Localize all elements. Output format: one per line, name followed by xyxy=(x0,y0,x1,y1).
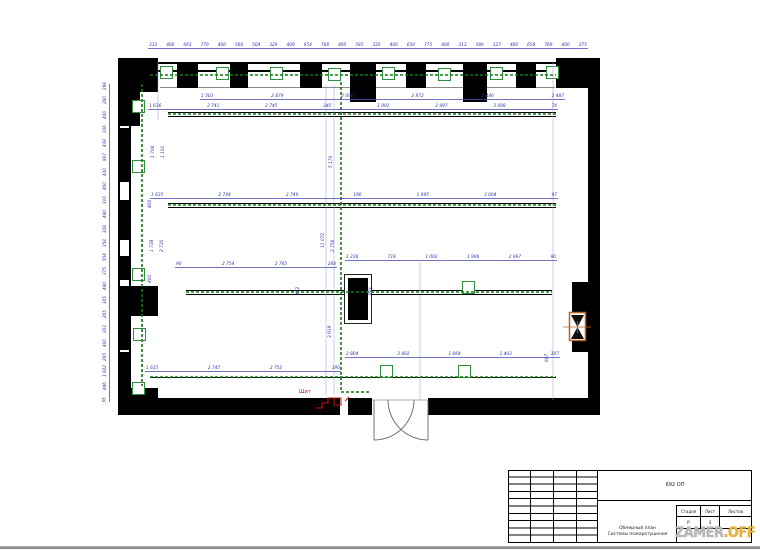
wall-pier xyxy=(118,128,131,182)
dimension-label: 438 xyxy=(102,139,106,147)
dimension-row-run3-left: 902 7542 765268 xyxy=(175,261,337,268)
dimension-label: 586 xyxy=(475,44,485,48)
dimension-label: 440 xyxy=(102,282,106,290)
dimension-label: 1 002 xyxy=(424,256,438,260)
dimension-label: 1 922 xyxy=(102,365,106,377)
dimension-label: 1 991 xyxy=(376,105,390,109)
dimension-label: 400 xyxy=(149,275,153,283)
wall-pier xyxy=(118,352,131,390)
drawing-title-line2: Системы пожаротушения xyxy=(608,532,668,539)
dimension-label: 650 xyxy=(406,44,416,48)
dimension-label: 2 879 xyxy=(270,95,284,99)
dimension-label: 1 403 xyxy=(499,353,513,357)
device-detector xyxy=(438,68,451,81)
dimension-label: 400 xyxy=(389,44,399,48)
dimension-row-top-3: 1 6362 7412 7452451 9912 9973 00874 xyxy=(148,103,558,110)
device-detector xyxy=(462,281,475,294)
dimension-label: 74 xyxy=(550,105,557,109)
dimension-label: 430 xyxy=(102,168,106,176)
dimension-label: 400 xyxy=(440,44,450,48)
dimension-label: 400 xyxy=(337,44,347,48)
dimension-label: 305 xyxy=(102,296,106,304)
dimension-column-left: 2982804001064389074304003104403283585543… xyxy=(100,84,110,402)
wall-pier xyxy=(177,62,198,88)
watermark: ZAMER.OFF xyxy=(681,524,749,542)
dimension-row-run3-right: 1 2367181 0021 9962 99790 xyxy=(345,254,557,261)
dimension-label: 298 xyxy=(102,82,106,90)
wall-right-pilaster xyxy=(572,282,588,352)
wall-bottom-right-segment xyxy=(428,398,600,415)
dimension-label: 190 xyxy=(331,367,341,371)
dimension-label: 275 xyxy=(578,44,588,48)
dimension-label: 310 xyxy=(102,196,106,204)
device-detector xyxy=(133,328,146,341)
device-detector xyxy=(490,67,503,80)
dimension-label: 607 xyxy=(546,354,550,362)
dimension-label: 265 xyxy=(102,310,106,318)
dimension-label: 268 xyxy=(327,263,337,267)
dimension-label: 504 xyxy=(251,44,261,48)
dimension-label: 90 xyxy=(175,263,182,267)
dimension-label: 190 xyxy=(352,194,362,198)
dimension-label: 400 xyxy=(102,111,106,119)
dimension-row-run2: 1 6352 7442 7491901 9953 00497 xyxy=(150,192,558,199)
dimension-label: 400 xyxy=(149,200,153,208)
device-detector xyxy=(458,365,471,378)
dimension-label: 2 744 xyxy=(217,194,231,198)
dimension-label: 2 730 xyxy=(161,240,165,252)
dimension-label: 265 xyxy=(102,353,106,361)
drawing-title: Обмерный план Системы пожаротушения xyxy=(598,500,677,542)
dimension-label: 2 752 xyxy=(269,367,283,371)
wall-pier xyxy=(300,62,322,88)
dimension-label: 2 997 xyxy=(508,256,522,260)
stage-label: Стадия xyxy=(677,506,701,517)
cable-run-4 xyxy=(150,377,556,378)
dimension-row-run4-left: 1 6152 7472 752190 xyxy=(145,365,341,372)
dimension-label: 718 xyxy=(387,256,397,260)
dimension-label: 1 101 xyxy=(162,146,166,158)
dimension-label: 245 xyxy=(322,105,332,109)
dimension-label: 1 636 xyxy=(148,105,162,109)
plan-overlay xyxy=(0,0,760,550)
dimension-label: 1 615 xyxy=(145,367,159,371)
device-detector xyxy=(380,365,393,378)
device-detector xyxy=(132,382,145,395)
dimension-label: 107 xyxy=(550,353,560,357)
dimension-label: 2 741 xyxy=(206,105,220,109)
device-detector xyxy=(328,68,341,81)
dimension-label: 1 064 xyxy=(447,353,461,357)
dimension-label: 1 706 xyxy=(152,146,156,158)
device-detector xyxy=(546,66,559,79)
wall-pier xyxy=(516,62,536,88)
dimension-label: 329 xyxy=(268,44,278,48)
dimension-label: 1 446 xyxy=(481,95,495,99)
wall-pier xyxy=(230,62,248,88)
wall-pier xyxy=(118,200,131,240)
dimension-label: 663 xyxy=(182,44,192,48)
wall-bottom-mid-segment xyxy=(348,398,372,415)
device-detector xyxy=(382,67,395,80)
dimension-label: 3 008 xyxy=(492,105,506,109)
dimension-label: 779 xyxy=(200,44,210,48)
dimension-label: 358 xyxy=(102,239,106,247)
dimension-label: 55 xyxy=(102,397,106,402)
wall-pilaster xyxy=(118,286,158,316)
equipment-cabinet xyxy=(348,278,368,320)
dimension-label: 3 802 xyxy=(396,353,410,357)
dimension-label: 312 xyxy=(148,44,158,48)
sheet-label: Лист xyxy=(701,506,720,517)
dimension-label: 654 xyxy=(303,44,313,48)
dimension-label: 313 xyxy=(457,44,467,48)
dimension-label: 327 xyxy=(492,44,502,48)
dimension-label: 303 xyxy=(102,325,106,333)
dimension-label: 2 804 xyxy=(345,353,359,357)
wall-pier xyxy=(406,62,426,88)
dimension-label: 1 995 xyxy=(416,194,430,198)
watermark-accent: .OFF xyxy=(723,525,755,541)
dimension-label: 400 xyxy=(165,44,175,48)
dimension-label: 400 xyxy=(509,44,519,48)
dimension-label: 400 xyxy=(286,44,296,48)
dimension-label: 472 xyxy=(297,287,301,295)
extension-lines xyxy=(158,60,553,400)
wall-right xyxy=(588,88,600,398)
dimension-label: 1 996 xyxy=(466,256,480,260)
device-detector xyxy=(216,67,229,80)
dimension-label: 280 xyxy=(102,96,106,104)
dimension-label: 658 xyxy=(526,44,536,48)
dimension-label: 3 919 xyxy=(329,326,333,338)
dimension-label: 400 xyxy=(102,339,106,347)
dimension-label: 400 xyxy=(102,182,106,190)
device-detector xyxy=(270,67,283,80)
dimension-label: 2 749 xyxy=(285,194,299,198)
dimension-label: 2 745 xyxy=(264,105,278,109)
dimension-label: 769 xyxy=(543,44,553,48)
dimension-label: 2 754 xyxy=(221,263,235,267)
dimension-label: 3 004 xyxy=(483,194,497,198)
dimension-label: 775 xyxy=(423,44,433,48)
dimension-row-run4-right: 2 8043 8021 0641 403107 xyxy=(345,351,560,358)
dimension-label: 2 997 xyxy=(434,105,448,109)
dimension-label: 5 170 xyxy=(330,156,334,168)
dimension-label: 1 236 xyxy=(345,256,359,260)
dimension-label: 601 xyxy=(369,287,373,295)
dimension-label: 440 xyxy=(102,211,106,219)
cable-run-1 xyxy=(168,112,556,117)
dimension-label: 90 xyxy=(549,256,556,260)
dimension-label: 446 xyxy=(102,382,106,390)
dimension-label: 768 xyxy=(320,44,330,48)
dimension-label: 2 487 xyxy=(551,95,565,99)
fire-cable-lines xyxy=(142,75,556,392)
wall-pier xyxy=(118,316,131,350)
dimension-label: 1 503 xyxy=(200,95,214,99)
document-number: 692 ОП xyxy=(598,470,752,500)
drawing-sheet: Щит 312400663779400568504329400654768400… xyxy=(0,0,760,550)
dimension-row-top-1: 3124006637794005685043294006547684005813… xyxy=(148,42,588,49)
panel-label: Щит xyxy=(299,390,311,395)
dimension-label: 106 xyxy=(102,125,106,133)
dimension-label: 2 747 xyxy=(207,367,221,371)
dimension-label: 568 xyxy=(234,44,244,48)
wall-pier xyxy=(118,256,131,280)
device-detector xyxy=(132,160,145,173)
device-detector xyxy=(132,268,145,281)
device-detector xyxy=(132,100,145,113)
dimension-label: 400 xyxy=(561,44,571,48)
dimension-label: 97 xyxy=(551,194,558,198)
door-swing xyxy=(372,400,428,440)
sheets-label: Листов xyxy=(720,506,751,517)
dimension-label: 400 xyxy=(217,44,227,48)
dimension-label: 1 635 xyxy=(150,194,164,198)
wall-corner-top-right xyxy=(556,58,600,88)
dimension-label: 2 756 xyxy=(332,240,336,252)
watermark-main: ZAMER xyxy=(675,525,724,541)
dimension-label: 2 765 xyxy=(274,263,288,267)
wall-bottom-left-segment xyxy=(118,398,340,415)
dimension-label: 328 xyxy=(102,225,106,233)
dimension-label: 1 738 xyxy=(151,240,155,252)
cable-run-2 xyxy=(168,203,556,208)
dimension-label: 335 xyxy=(371,44,381,48)
device-detector xyxy=(160,66,173,79)
dimension-label: 581 xyxy=(354,44,364,48)
sheet-bottom-edge xyxy=(0,546,760,549)
cable-trunk xyxy=(341,82,369,392)
dimension-label: 554 xyxy=(102,253,106,261)
dimension-label: 2 090 xyxy=(340,95,354,99)
dimension-label: 11 072 xyxy=(322,233,326,248)
dimension-label: 907 xyxy=(102,153,106,161)
dimension-label: 375 xyxy=(102,268,106,276)
dimension-label: 2 872 xyxy=(410,95,424,99)
dimension-row-top-2: 1 5032 8792 0902 8721 4462 487 xyxy=(200,93,565,100)
